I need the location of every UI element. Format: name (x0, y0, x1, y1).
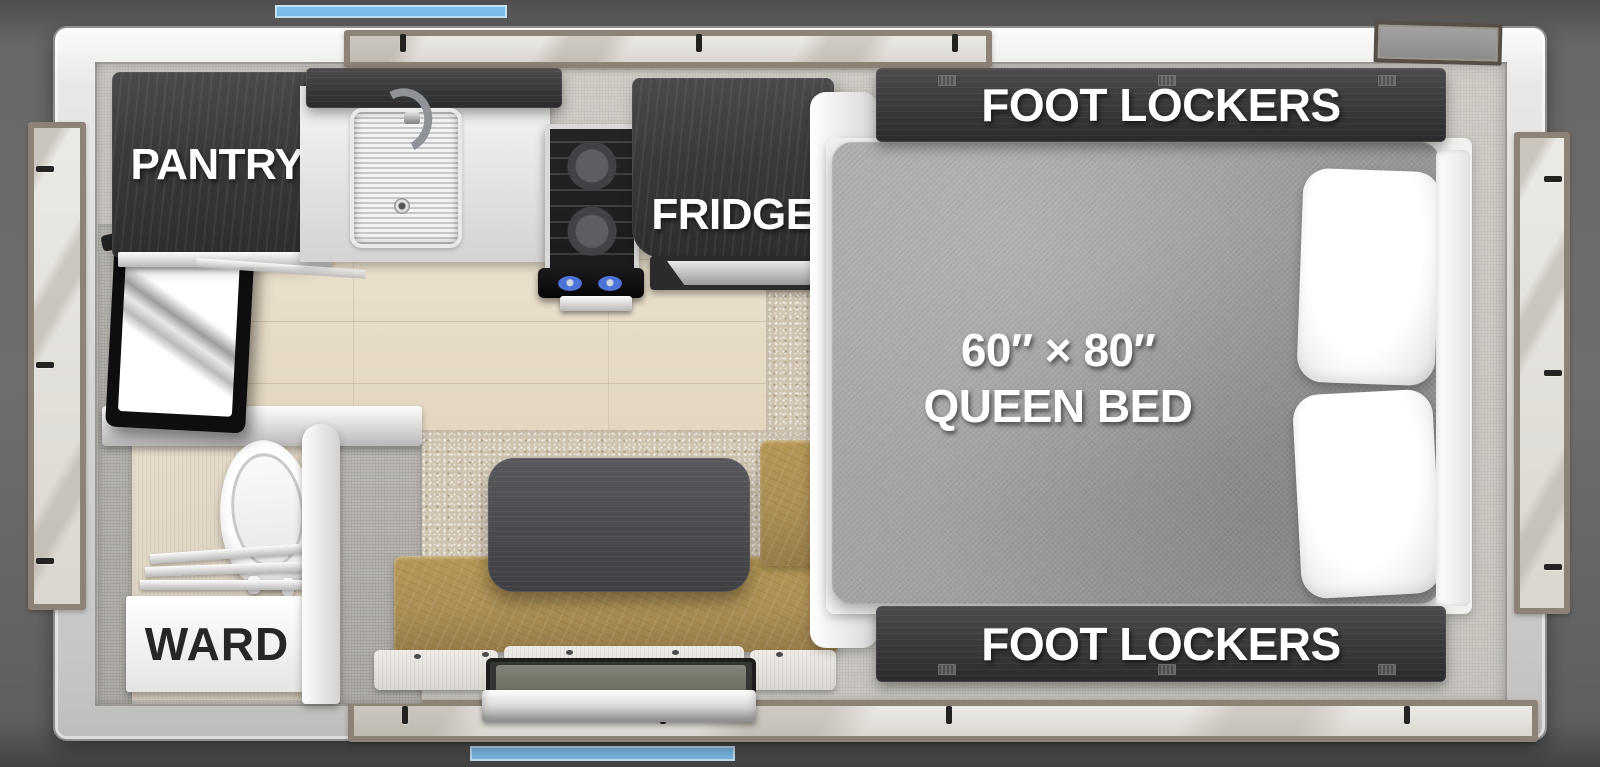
pantry-label: PANTRY (131, 140, 304, 190)
window-bottom-latch-4 (1404, 706, 1410, 724)
cushion-button-2 (482, 652, 489, 657)
entry-step-plate (482, 690, 756, 722)
window-left-latch-1 (36, 166, 54, 172)
foot-locker-top-hardware-2 (1158, 75, 1176, 86)
fridge-vent-panel (660, 261, 834, 285)
pantry-cabinet: PANTRY (112, 72, 322, 258)
window-top (344, 30, 992, 68)
dinette-table (488, 458, 750, 592)
cooktop-control-panel (538, 268, 644, 298)
window-right-latch-3 (1544, 564, 1562, 570)
cooktop-handle (560, 296, 632, 311)
bed-pillow-bottom (1292, 388, 1442, 599)
entry-door-panel (496, 665, 746, 693)
foot-locker-bottom-hardware-1 (938, 664, 956, 675)
window-top-latch-1 (400, 34, 406, 52)
bed-pillow-top (1296, 168, 1441, 387)
bathroom-divider-pillar (302, 424, 340, 704)
cushion-button-4 (672, 650, 679, 655)
cooktop-knob-left (558, 276, 582, 291)
bench-seat-cushion-right (750, 650, 836, 690)
foot-locker-top-hardware-1 (938, 75, 956, 86)
window-left-latch-3 (36, 558, 54, 564)
cushion-button-5 (776, 652, 783, 657)
bed-size-label: 60″ × 80″ (961, 323, 1155, 377)
bench-seat-cushion-left (374, 650, 498, 690)
window-bottom-latch-3 (946, 706, 952, 724)
faucet-head (404, 112, 420, 124)
roof-vent (1373, 20, 1502, 65)
window-right-latch-2 (1544, 370, 1562, 376)
ward-cabinet: WARD (126, 596, 308, 692)
window-left-latch-2 (36, 362, 54, 368)
roof-accent-strip-bottom (470, 746, 735, 761)
cushion-button-1 (414, 654, 421, 659)
overhead-shelf (306, 68, 562, 108)
foot-locker-top-hardware-3 (1378, 75, 1396, 86)
foot-lockers-bottom-label: FOOT LOCKERS (981, 617, 1340, 671)
foot-lockers-top-label: FOOT LOCKERS (981, 78, 1340, 132)
bed-sheet-fold (1436, 150, 1470, 606)
fridge-label: FRIDGE (651, 190, 814, 240)
fridge-cabinet: FRIDGE (632, 78, 834, 258)
bed-label-group: 60″ × 80″ QUEEN BED (838, 318, 1278, 438)
window-bottom-latch-1 (402, 706, 408, 724)
window-top-latch-2 (696, 34, 702, 52)
cushion-button-3 (566, 650, 573, 655)
roof-accent-strip-top (275, 5, 507, 18)
tv-screen (118, 249, 240, 417)
ward-shelf-3 (140, 580, 308, 590)
ward-label: WARD (145, 617, 290, 671)
floorplan-canvas: WARD PANTRY FRIDGE (0, 0, 1600, 767)
cooktop (545, 124, 639, 276)
window-top-latch-3 (952, 34, 958, 52)
foot-locker-bottom-hardware-3 (1378, 664, 1396, 675)
bed-type-label: QUEEN BED (924, 379, 1193, 433)
window-right-latch-1 (1544, 176, 1562, 182)
cooktop-knob-right (598, 276, 622, 291)
sink-drain (394, 198, 410, 214)
foot-locker-bottom-hardware-2 (1158, 664, 1176, 675)
